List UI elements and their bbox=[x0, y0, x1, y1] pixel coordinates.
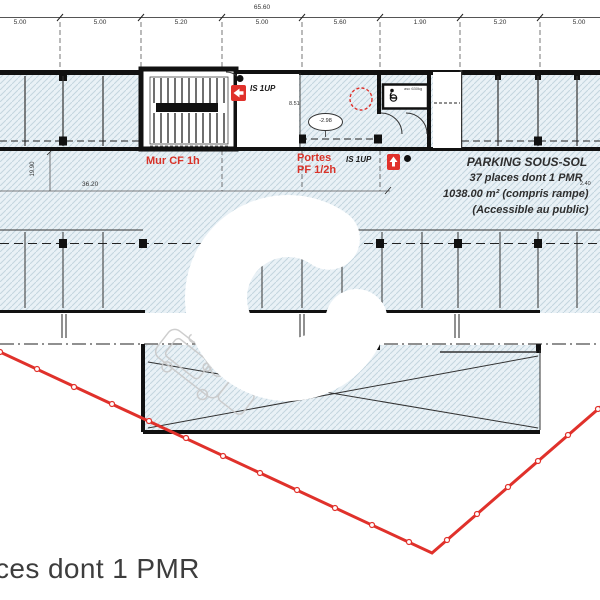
parking-places: 37 places dont 1 PMR bbox=[450, 172, 600, 184]
vertical-dimension: 19.90 bbox=[30, 152, 37, 186]
elevator-label: asc 630kg bbox=[404, 87, 424, 91]
overall-dimension: 65.60 bbox=[232, 4, 292, 11]
fire-wall-label: Mur CF 1h bbox=[146, 155, 200, 167]
exit-label-2: IS 1UP bbox=[346, 156, 371, 165]
small-room bbox=[433, 72, 461, 148]
exit-icon-1 bbox=[231, 85, 246, 101]
level-marker-value: -2.98 bbox=[310, 118, 341, 124]
exit-icon-2 bbox=[387, 154, 400, 170]
door-dot-icon bbox=[237, 75, 244, 82]
dim-label: 5.00 bbox=[242, 19, 282, 26]
floorplan-canvas: 65.60 5.00 5.00 5.20 5.00 5.60 1.90 5.20… bbox=[0, 0, 600, 600]
dim-label: 1.90 bbox=[400, 19, 440, 26]
dim-label: 5.00 bbox=[0, 19, 40, 26]
parking-access: (Accessible au public) bbox=[458, 204, 600, 216]
exit-label-1: IS 1UP bbox=[250, 85, 275, 94]
small-dimension: 8.51 bbox=[289, 101, 300, 107]
dim-label: 5.00 bbox=[80, 19, 120, 26]
caption-text: ces dont 1 PMR bbox=[0, 553, 200, 584]
stairwell bbox=[141, 69, 243, 149]
interior-dimension: 36.20 bbox=[82, 181, 98, 188]
plan-linework bbox=[0, 0, 600, 600]
dim-label: 5.20 bbox=[161, 19, 201, 26]
dim-label: 5.00 bbox=[559, 19, 599, 26]
parking-area: 1038.00 m² (compris rampe) bbox=[443, 188, 589, 200]
door-dot-icon bbox=[404, 155, 411, 162]
dim-label: 5.20 bbox=[480, 19, 520, 26]
dim-label: 5.60 bbox=[320, 19, 360, 26]
parking-title: PARKING SOUS-SOL bbox=[452, 156, 600, 169]
